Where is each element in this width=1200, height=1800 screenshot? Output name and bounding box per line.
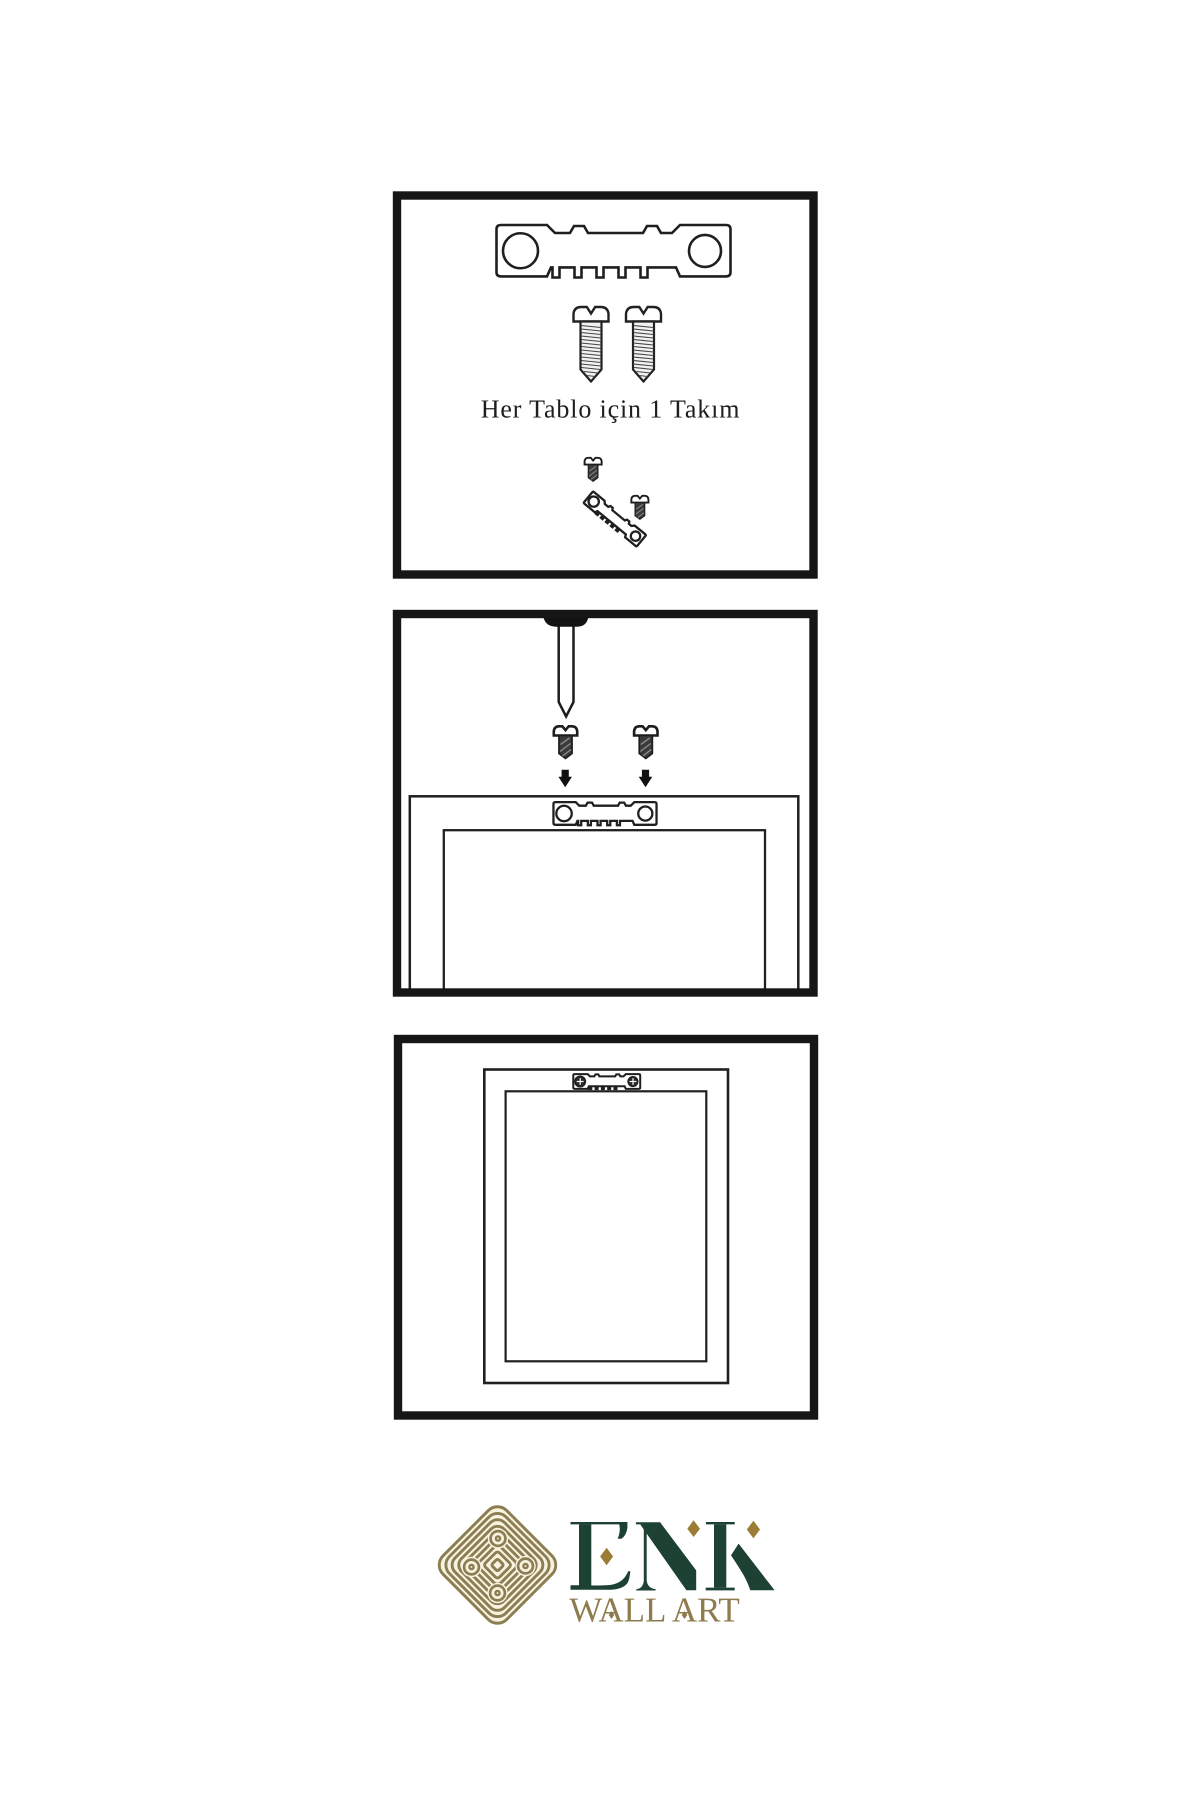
svg-text:WALL ART: WALL ART <box>569 1591 740 1630</box>
svg-text:Her Tablo için 1 Takım: Her Tablo için 1 Takım <box>481 395 741 424</box>
